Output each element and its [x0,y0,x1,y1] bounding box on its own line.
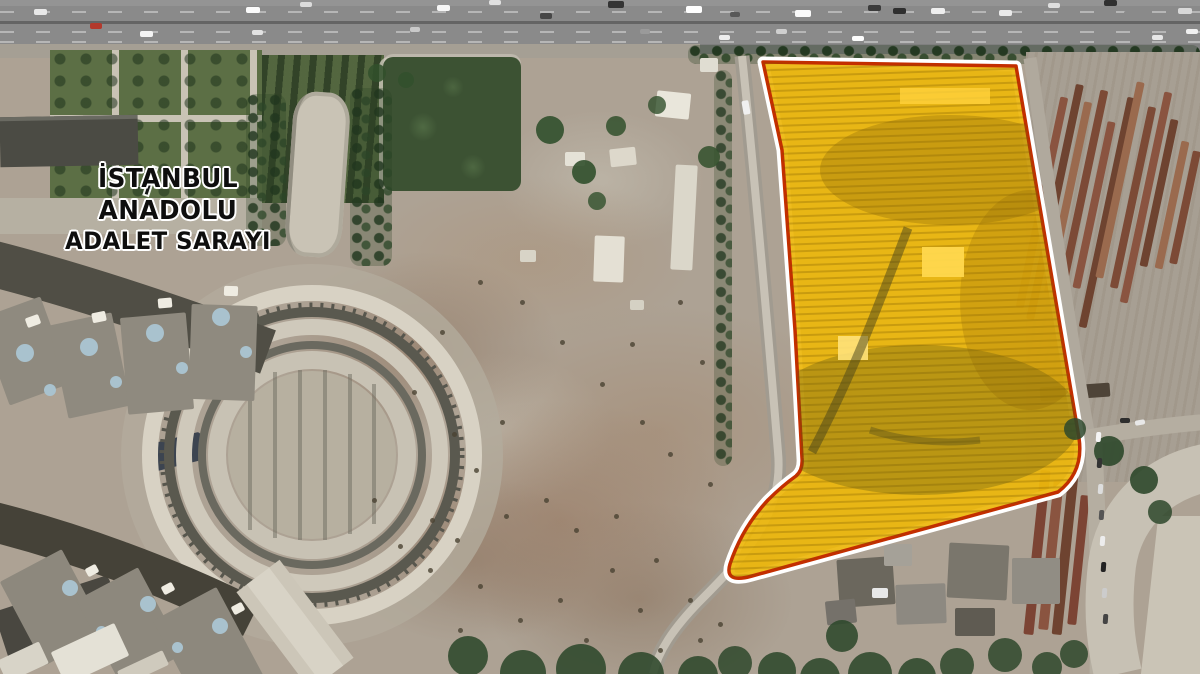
satellite-map: İSTANBUL ANADOLU ADALET SARAYI [0,0,1200,674]
road-wide-curve [1110,468,1200,674]
roads-and-parcel [0,0,1200,674]
road-east-connector [1085,422,1200,438]
map-label: İSTANBUL ANADOLU ADALET SARAYI [26,164,311,257]
map-label-line1: İSTANBUL ANADOLU [26,164,311,227]
road-west-center [653,56,779,674]
map-label-line2: ADALET SARAYI [26,227,311,256]
